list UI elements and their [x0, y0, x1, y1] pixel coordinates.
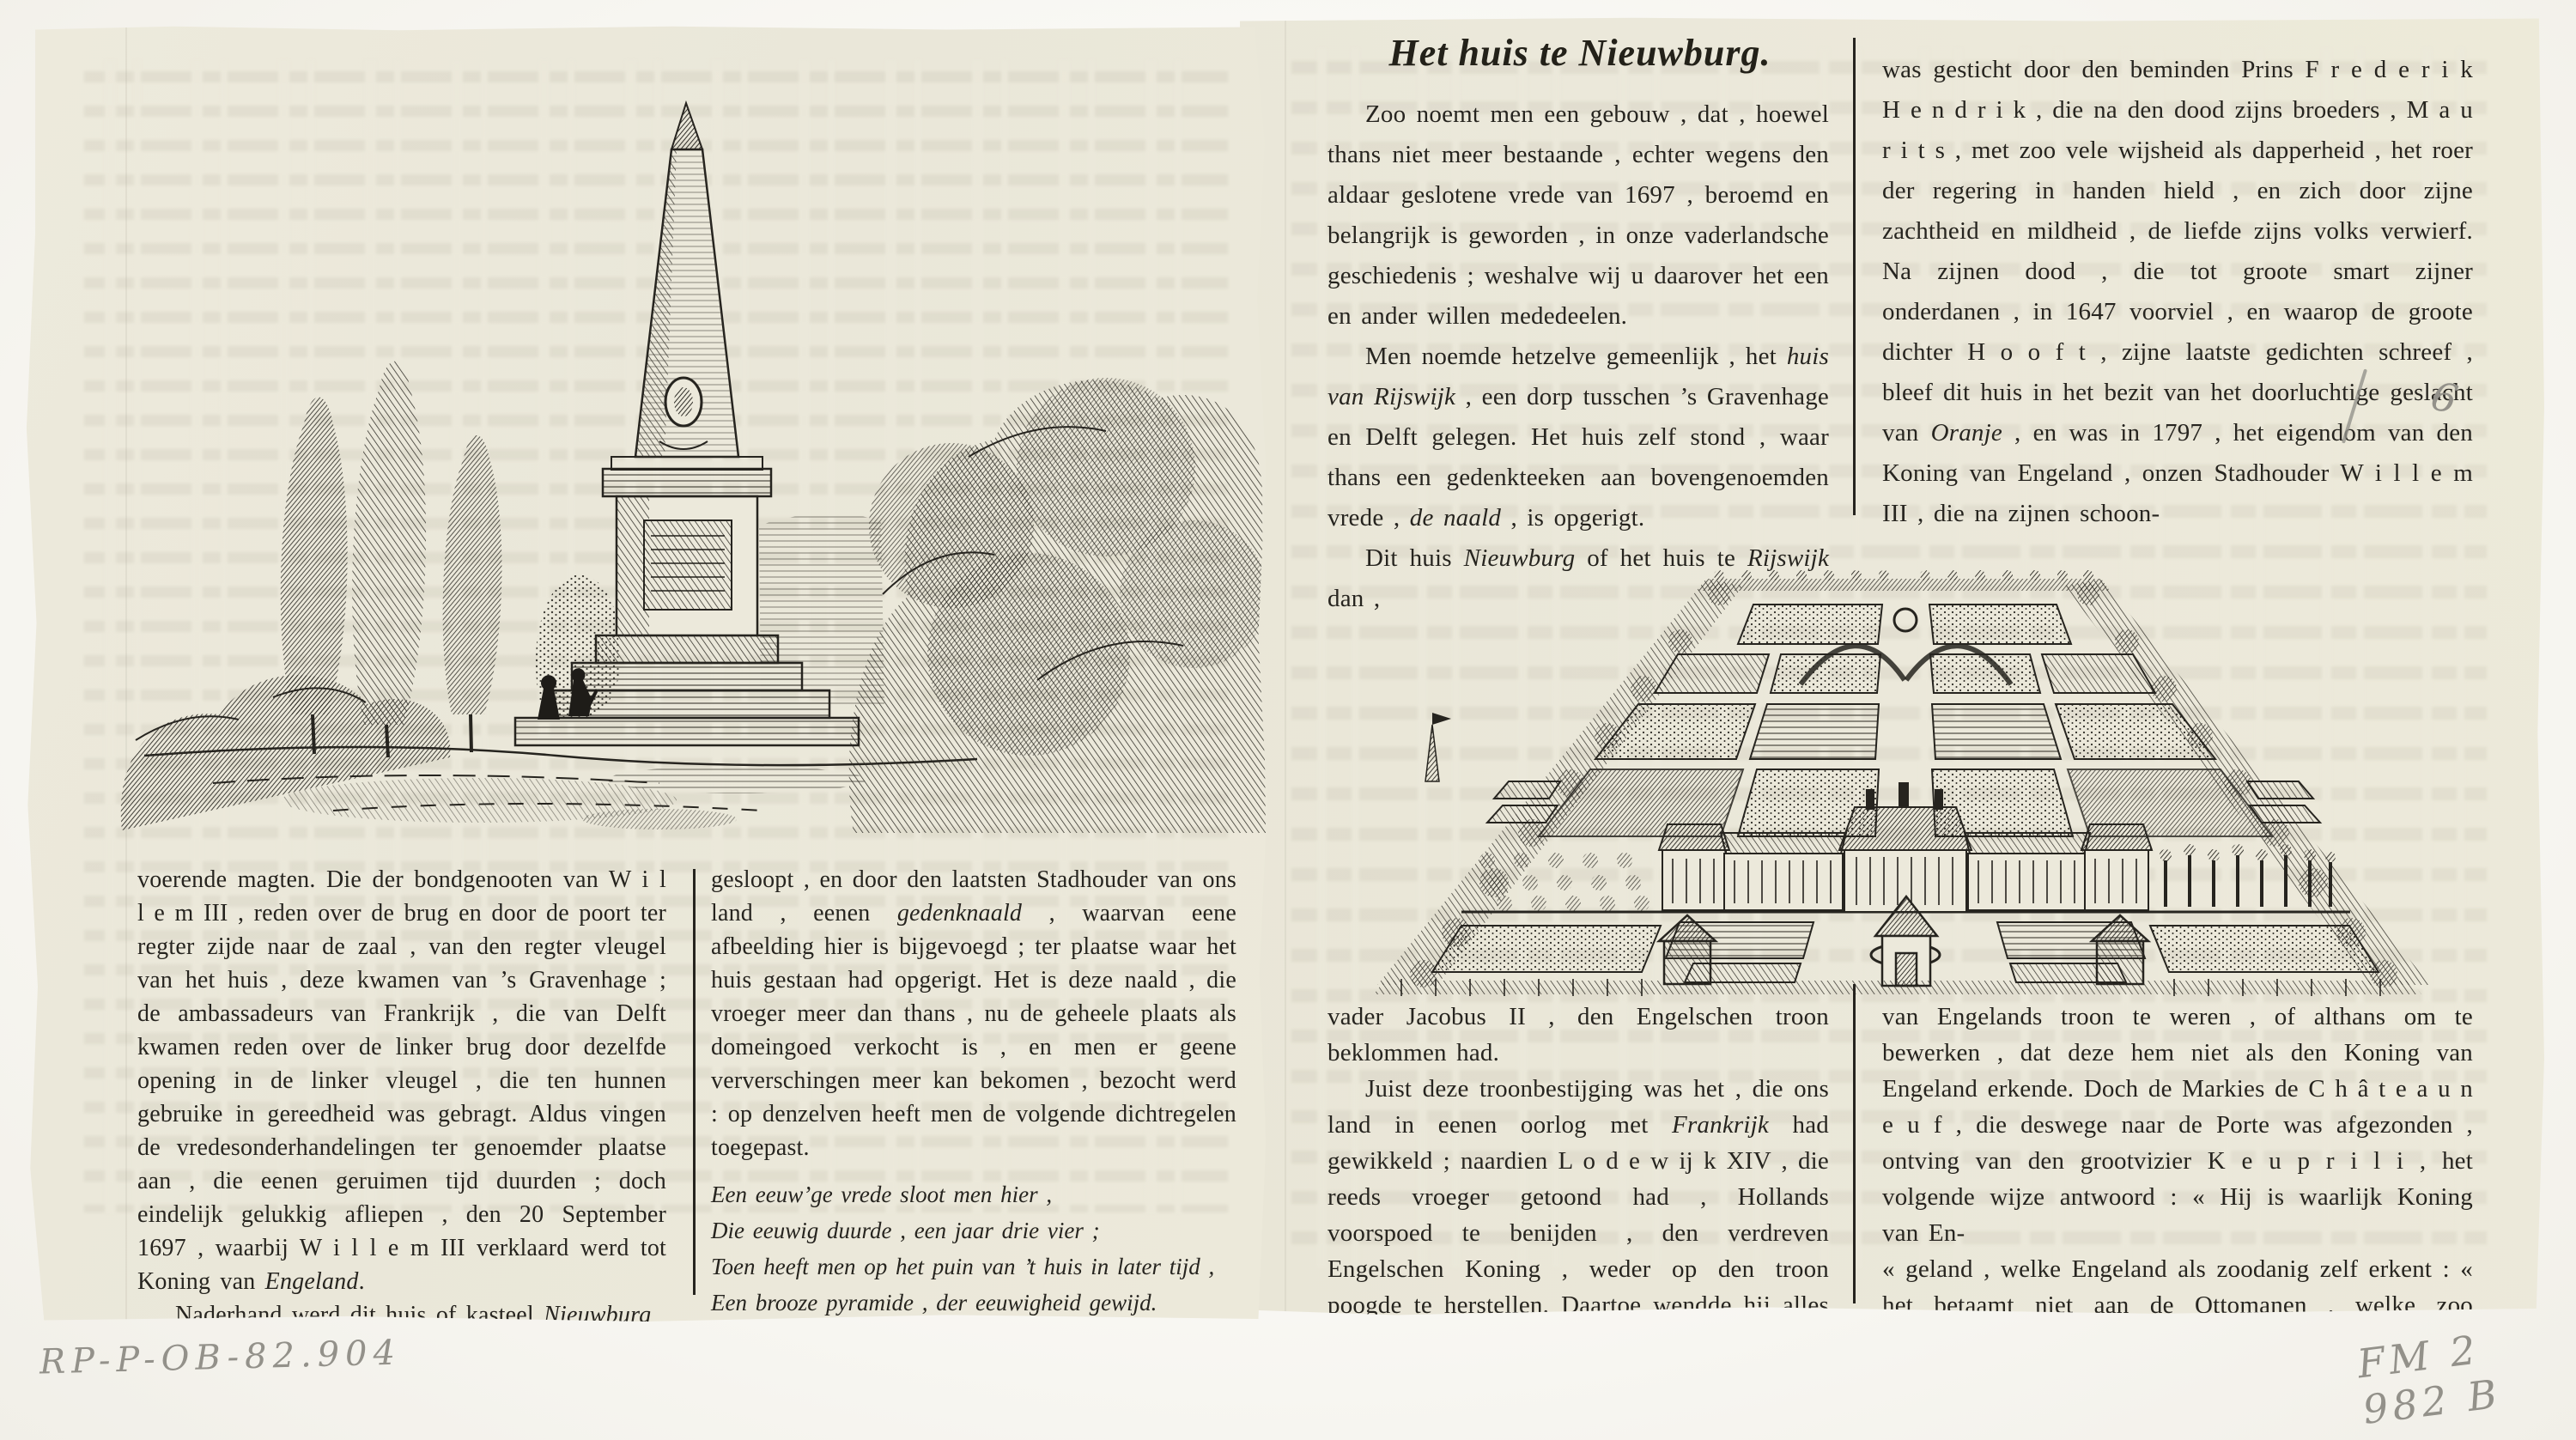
column-divider-rule — [1853, 38, 1856, 515]
left-page-column-2: gesloopt , en door den laatsten Stadhoud… — [711, 863, 1236, 1349]
right-page: Het huis te Nieuwburg. Zoo noemt men een… — [1240, 17, 2547, 1319]
paragraph: voerende magten. Die der bondgenooten va… — [137, 863, 666, 1298]
paper-crease — [1285, 17, 1286, 1319]
verse-line: Toen heeft men op het puin van ’t huis i… — [711, 1249, 1236, 1285]
verse-line: Die eeuwig duurde , een jaar drie vier ; — [711, 1212, 1236, 1249]
garden-engraving-svg — [1333, 508, 2492, 998]
verse: Een eeuw’ge vrede sloot men hier , Die e… — [711, 1176, 1236, 1321]
paragraph: van Engelands troon te weren , of althan… — [1882, 999, 2473, 1251]
memorial-obelisk-engraving — [110, 27, 1269, 835]
article-title: Het huis te Nieuwburg. — [1322, 31, 1838, 76]
obelisk-engraving-svg — [110, 27, 1269, 835]
verse-line: Een brooze pyramide , der eeuwigheid gew… — [711, 1285, 1236, 1321]
paragraph: vader Jacobus II , den Engelschen troon … — [1327, 999, 1829, 1071]
handwritten-inventory-number: RP-P-OB-82.904 — [39, 1333, 401, 1382]
column-divider-rule — [1853, 984, 1856, 1303]
paragraph: Zoo noemt men een gebouw , dat , hoewel … — [1327, 94, 1829, 337]
section-end-rule — [895, 1343, 969, 1349]
right-page-bottom-column-1: vader Jacobus II , den Engelschen troon … — [1327, 999, 1829, 1395]
right-page-bottom-column-2: van Engelands troon te weren , of althan… — [1882, 999, 2473, 1359]
left-page-column-1: voerende magten. Die der bondgenooten va… — [137, 863, 666, 1332]
handwritten-collection-mark: FM 2 982 B — [2354, 1315, 2576, 1433]
column-divider-rule — [693, 869, 696, 1295]
garden-birdseye-engraving — [1333, 508, 2492, 998]
left-page: voerende magten. Die der bondgenooten va… — [24, 26, 1271, 1324]
paragraph: was gesticht door den beminden Prins F r… — [1882, 50, 2473, 534]
paragraph: Naderhand werd dit huis of kasteel Nieuw… — [137, 1298, 666, 1332]
paragraph: gesloopt , en door den laatsten Stadhoud… — [711, 863, 1236, 1164]
verse-line: Een eeuw’ge vrede sloot men hier , — [711, 1176, 1236, 1212]
scanned-document: voerende magten. Die der bondgenooten va… — [0, 0, 2576, 1440]
right-page-top-column-2: was gesticht door den beminden Prins F r… — [1882, 50, 2473, 534]
paragraph: Juist deze troonbestijging was het , die… — [1327, 1071, 1829, 1395]
